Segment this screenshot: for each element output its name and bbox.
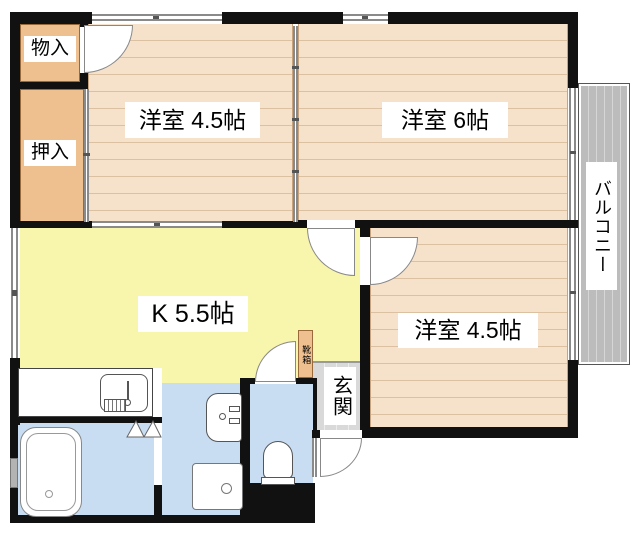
room-label-text: 洋室 4.5帖 xyxy=(139,108,246,132)
window-tick xyxy=(153,16,159,19)
wall xyxy=(222,221,298,228)
wall xyxy=(388,12,578,24)
wall xyxy=(298,220,307,228)
room-top-left-label: 洋室 4.5帖 xyxy=(125,102,260,138)
wall xyxy=(355,220,578,228)
window-tick xyxy=(570,291,576,294)
entrance-door-swing xyxy=(320,438,362,477)
room-label-text: 押入 xyxy=(31,143,69,163)
window-tick xyxy=(292,118,299,121)
wall xyxy=(313,378,317,430)
wall xyxy=(10,12,20,228)
wall xyxy=(10,425,18,458)
balcony-label: バルコニー xyxy=(586,162,617,290)
kitchen-floor xyxy=(162,362,247,383)
room-top-right-label: 洋室 6帖 xyxy=(382,102,508,138)
room-label-text: 洋室 4.5帖 xyxy=(414,318,521,342)
wall xyxy=(360,220,370,237)
kitchen-label: K 5.5帖 xyxy=(138,296,248,332)
kitchen-faucet-icon xyxy=(127,381,129,401)
window-tick xyxy=(362,16,368,19)
porch-edge xyxy=(312,438,317,477)
wall xyxy=(247,378,255,384)
window-tick xyxy=(12,290,17,296)
washbasin-faucet-icon xyxy=(229,418,240,424)
room-label-text: バルコニー xyxy=(592,179,611,274)
wall xyxy=(20,221,92,228)
shoe-box-label: 靴箱 xyxy=(300,336,311,374)
sink-drain-rack xyxy=(104,399,126,412)
washbasin-faucet-icon xyxy=(229,406,240,412)
balcony-window xyxy=(569,228,576,360)
wall xyxy=(312,430,320,438)
window-tick xyxy=(83,153,90,156)
wall xyxy=(296,378,313,384)
closet-label: 押入 xyxy=(24,140,76,166)
entrance-label: 玄関 xyxy=(324,367,356,425)
bathtub-inner xyxy=(26,433,76,511)
balcony-window xyxy=(569,88,576,220)
room-label-text: K 5.5帖 xyxy=(151,301,234,327)
wall xyxy=(154,485,162,515)
window-tick xyxy=(570,151,576,154)
floorplan: 洋室 4.5帖 洋室 6帖 洋室 4.5帖 K 5.5帖 物入 押入 玄関 靴箱… xyxy=(0,0,640,535)
washing-machine-drain xyxy=(221,483,232,494)
wall xyxy=(362,427,578,438)
wall xyxy=(360,285,370,430)
toilet-bowl xyxy=(263,441,293,479)
toilet-base xyxy=(261,477,295,485)
wall xyxy=(20,82,88,89)
storage-label: 物入 xyxy=(24,36,76,62)
bathroom-folding-door xyxy=(126,420,162,438)
bathroom-window xyxy=(10,458,18,488)
wall xyxy=(568,12,578,88)
room-label-text: 玄関 xyxy=(330,375,351,417)
window-tick xyxy=(154,223,160,226)
wall xyxy=(240,483,315,523)
room-label-text: 物入 xyxy=(31,39,69,59)
washing-machine-pan xyxy=(192,463,243,510)
door-opening xyxy=(320,430,362,438)
window-tick xyxy=(292,170,299,173)
room-bottom-right-label: 洋室 4.5帖 xyxy=(398,313,538,348)
bathtub-drain xyxy=(45,490,53,498)
room-partition-sliding-door xyxy=(293,26,298,222)
door-opening xyxy=(360,237,370,285)
room-label-text: 洋室 6帖 xyxy=(401,108,489,132)
door-opening xyxy=(307,220,355,228)
wall xyxy=(222,12,343,24)
entrance-step-line xyxy=(313,361,360,363)
window-tick xyxy=(292,66,299,69)
room-label-text: 靴箱 xyxy=(301,345,310,365)
wall xyxy=(80,73,88,89)
washbasin-faucet-icon xyxy=(219,413,226,420)
